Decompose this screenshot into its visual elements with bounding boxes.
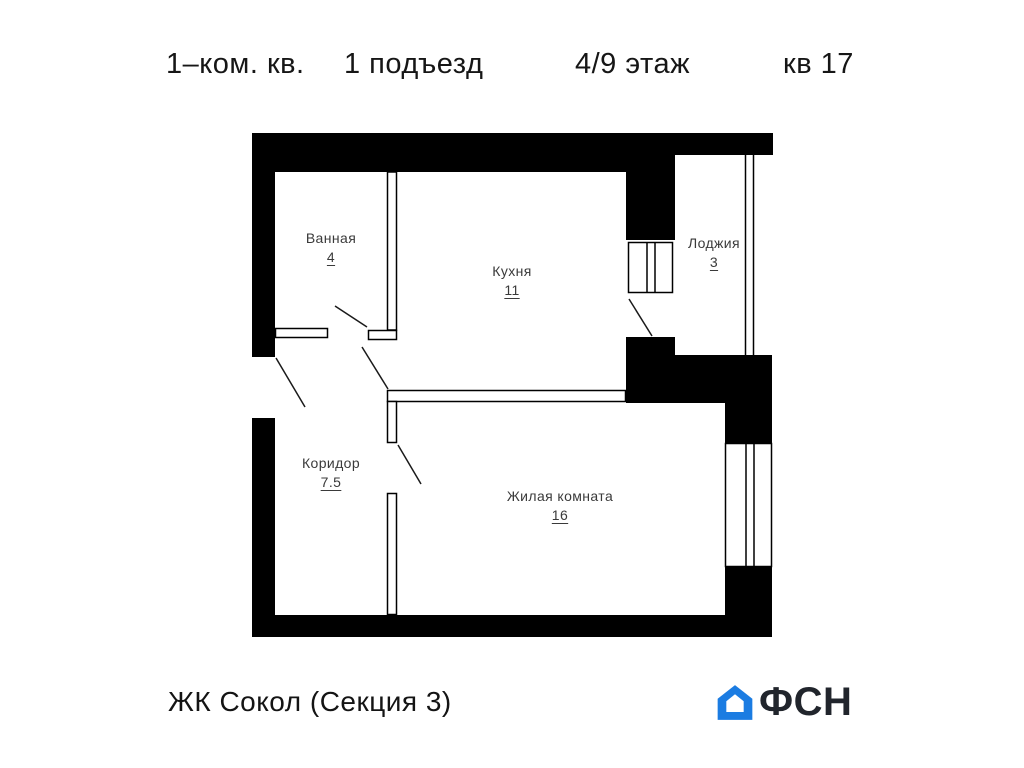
room-name-corridor: Коридор [302,454,360,473]
wall-kitchen-loggia-upper [626,133,675,240]
project-name-label: ЖК Сокол (Секция 3) [168,686,452,718]
house-icon [716,684,754,721]
room-area-living-room: 16 [507,506,613,525]
apartment-type-label: 1–ком. кв. [166,48,305,81]
wall-center-right-block [626,355,772,403]
partition-corridor-living-upper [388,402,397,443]
room-label-corridor: Коридор 7.5 [302,454,360,492]
room-label-kitchen: Кухня 11 [492,262,531,300]
wall-kitchen-loggia-lower [626,337,675,355]
floorplan-page: 1–ком. кв. 1 подъезд 4/9 этаж кв 17 [0,0,1024,768]
living-room-window [726,444,772,567]
floor-plan-drawing [250,130,785,640]
partition-kitchen-living [388,391,626,402]
door-swing-loggia [629,299,652,336]
room-label-bathroom: Ванная 4 [306,229,356,267]
door-swing-kitchen [362,347,388,389]
wall-left-upper [252,133,275,357]
room-area-bathroom: 4 [306,248,356,267]
partition-bathroom-foot [369,331,397,340]
partition-corridor-living-lower [388,494,397,615]
room-label-living-room: Жилая комната 16 [507,487,613,525]
apartment-number-label: кв 17 [783,48,854,81]
door-swing-bathroom [335,306,367,327]
room-name-loggia: Лоджия [688,234,740,253]
floor-label: 4/9 этаж [575,48,690,81]
partition-bathroom-kitchen [388,172,397,330]
room-name-bathroom: Ванная [306,229,356,248]
door-swing-living-room [398,445,421,484]
room-area-kitchen: 11 [492,281,531,300]
room-label-loggia: Лоджия 3 [688,234,740,272]
partition-bathroom-bottom [276,329,328,338]
kitchen-loggia-window [629,243,673,293]
room-name-living-room: Жилая комната [507,487,613,506]
developer-logo: ФСН [716,680,852,724]
wall-right-above-window [725,403,772,443]
door-swing-entrance [276,358,305,407]
wall-right-below-window [725,567,772,637]
room-area-loggia: 3 [688,253,740,272]
wall-top [252,133,630,172]
wall-bottom [252,615,772,637]
logo-text: ФСН [759,680,852,724]
wall-top-loggia [675,133,773,155]
wall-left-lower [252,418,275,637]
room-name-kitchen: Кухня [492,262,531,281]
entrance-label: 1 подъезд [344,48,483,81]
room-area-corridor: 7.5 [302,473,360,492]
